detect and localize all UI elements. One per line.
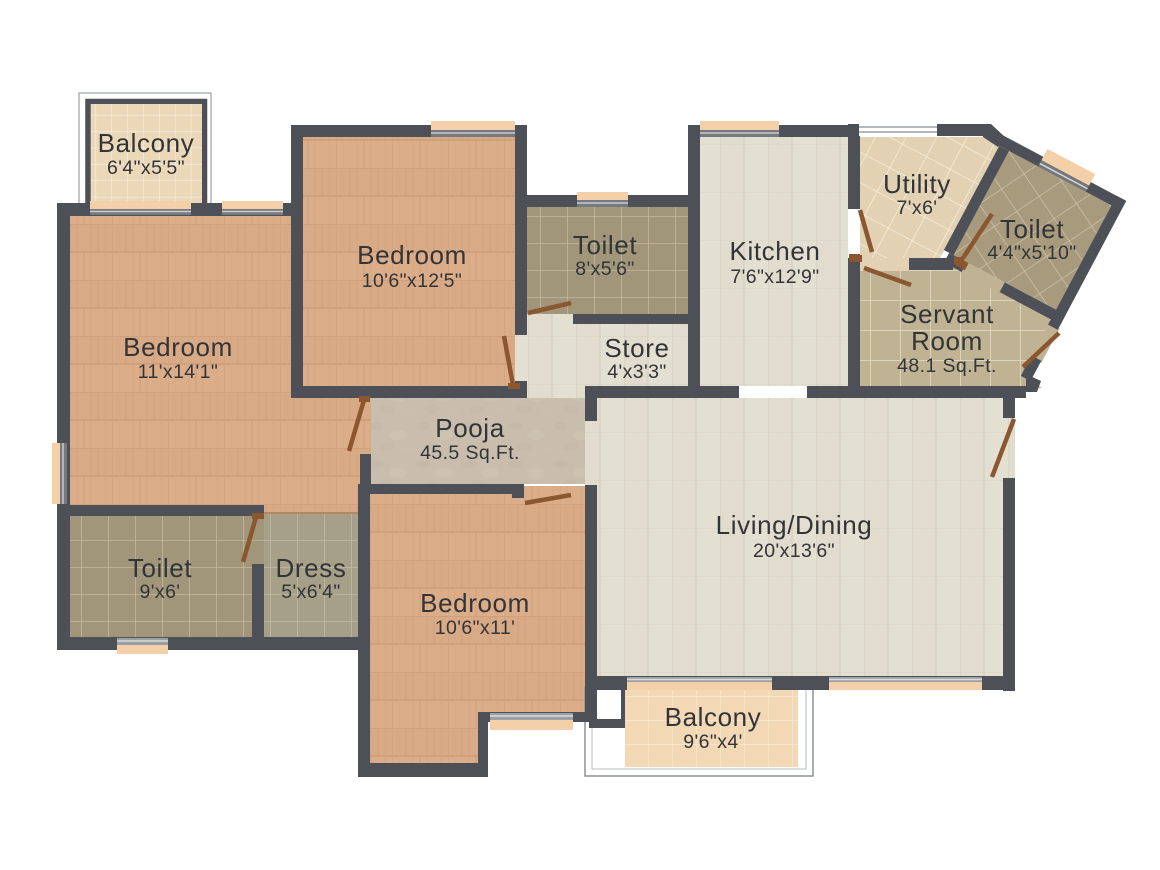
svg-text:Toilet: Toilet (1000, 214, 1064, 244)
svg-text:Utility: Utility (883, 169, 951, 199)
svg-text:Kitchen: Kitchen (730, 236, 821, 266)
svg-text:6'4"x5'5": 6'4"x5'5" (107, 157, 185, 179)
svg-text:7'6"x12'9": 7'6"x12'9" (730, 266, 819, 288)
svg-text:Bedroom: Bedroom (420, 588, 530, 618)
svg-text:9'6"x4': 9'6"x4' (683, 731, 742, 753)
svg-text:Balcony: Balcony (665, 702, 762, 732)
svg-text:Toilet: Toilet (128, 553, 192, 583)
svg-text:10'6"x12'5": 10'6"x12'5" (362, 270, 463, 292)
svg-text:48.1 Sq.Ft.: 48.1 Sq.Ft. (897, 355, 997, 377)
svg-text:Balcony: Balcony (98, 128, 195, 158)
svg-text:8'x5'6": 8'x5'6" (575, 258, 634, 280)
svg-text:7'x6': 7'x6' (897, 197, 938, 219)
svg-text:Toilet: Toilet (573, 230, 637, 260)
svg-text:45.5 Sq.Ft.: 45.5 Sq.Ft. (420, 442, 520, 464)
svg-text:Pooja: Pooja (435, 413, 505, 443)
svg-text:Dress: Dress (276, 553, 347, 583)
svg-text:Servant: Servant (900, 299, 994, 329)
svg-text:Store: Store (604, 333, 669, 363)
svg-text:11'x14'1": 11'x14'1" (138, 361, 219, 383)
svg-text:Bedroom: Bedroom (357, 240, 467, 270)
svg-text:5'x6'4": 5'x6'4" (281, 581, 340, 603)
svg-text:4'4"x5'10": 4'4"x5'10" (987, 242, 1076, 264)
svg-text:20'x13'6": 20'x13'6" (753, 540, 835, 562)
svg-text:Bedroom: Bedroom (123, 332, 233, 362)
svg-text:Room: Room (911, 326, 983, 356)
svg-text:9'x6': 9'x6' (140, 581, 181, 603)
svg-text:10'6"x11': 10'6"x11' (435, 617, 516, 639)
svg-text:Living/Dining: Living/Dining (716, 510, 873, 540)
svg-text:4'x3'3": 4'x3'3" (607, 361, 666, 383)
